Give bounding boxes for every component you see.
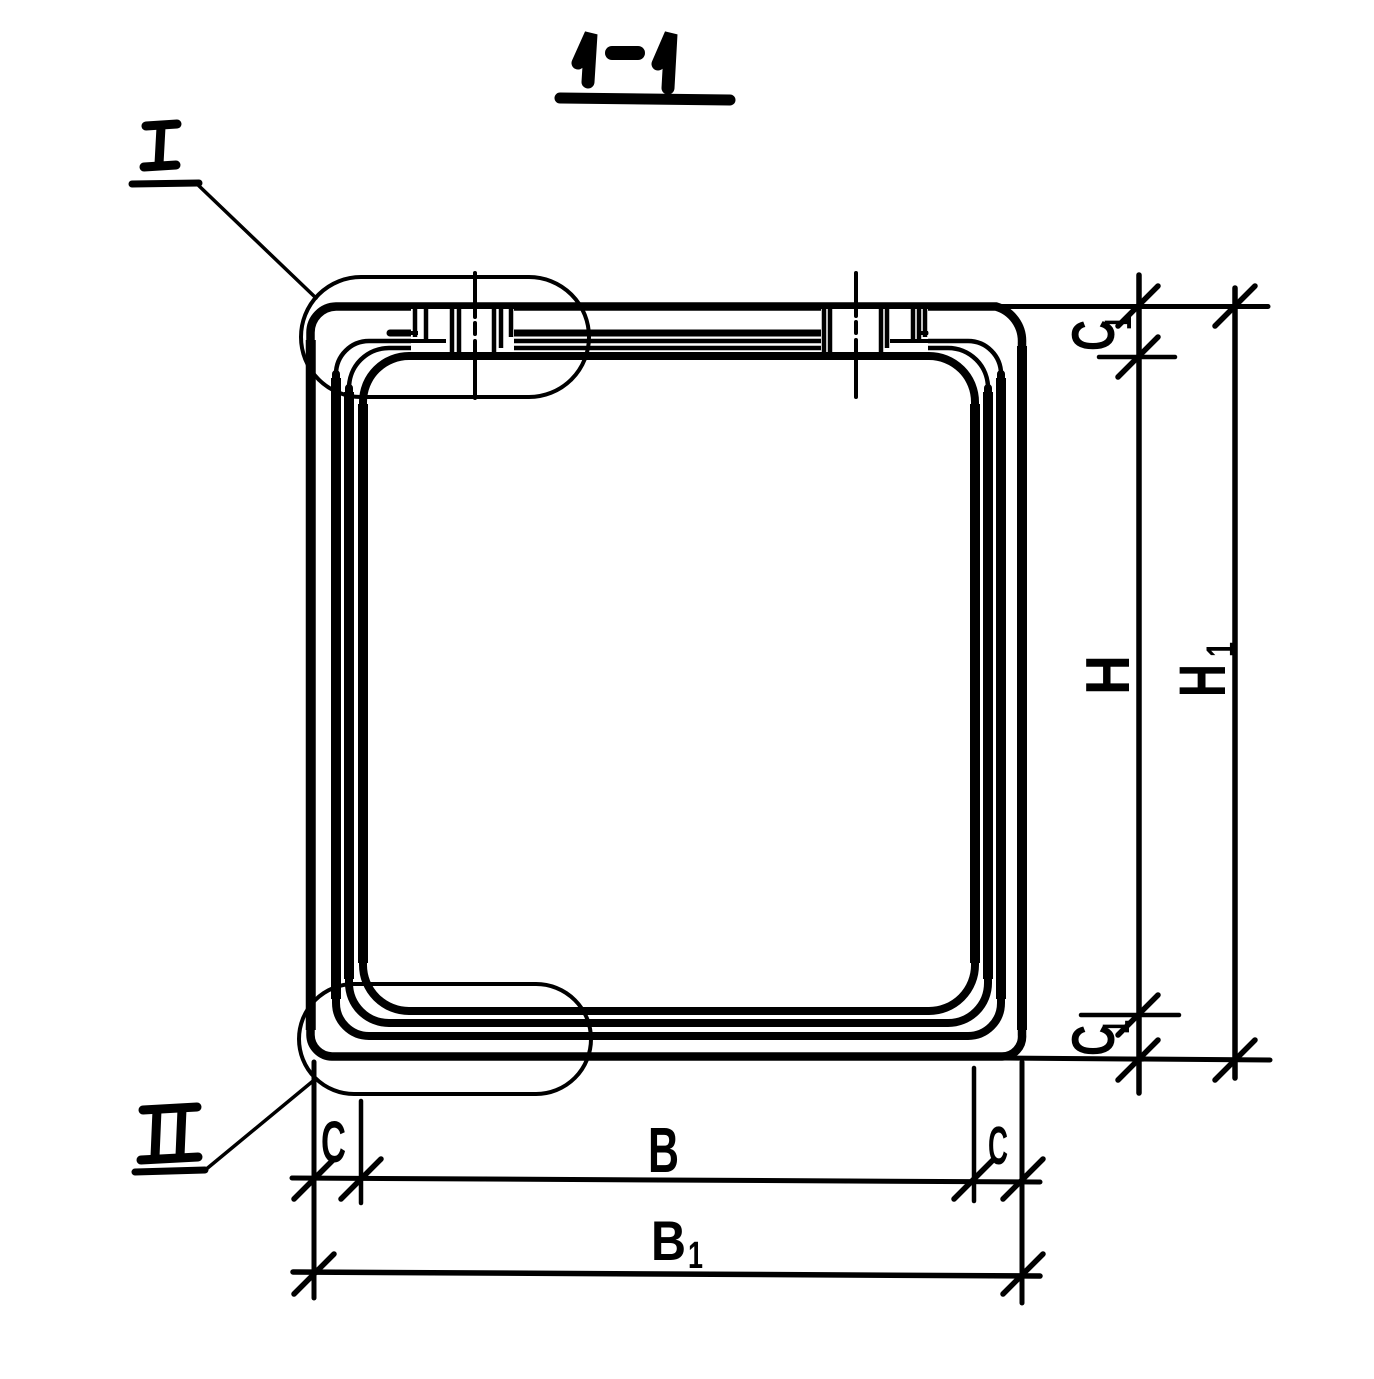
svg-text:1: 1: [1096, 1020, 1138, 1034]
svg-text:1: 1: [688, 1235, 703, 1277]
svg-text:C: C: [321, 1110, 346, 1175]
svg-text:B: B: [648, 1114, 679, 1186]
svg-text:1: 1: [1098, 316, 1140, 330]
svg-text:B: B: [651, 1209, 686, 1272]
svg-text:1: 1: [1199, 642, 1243, 657]
svg-text:H: H: [1074, 655, 1143, 695]
svg-text:H: H: [1165, 664, 1239, 697]
svg-text:C: C: [988, 1116, 1008, 1176]
